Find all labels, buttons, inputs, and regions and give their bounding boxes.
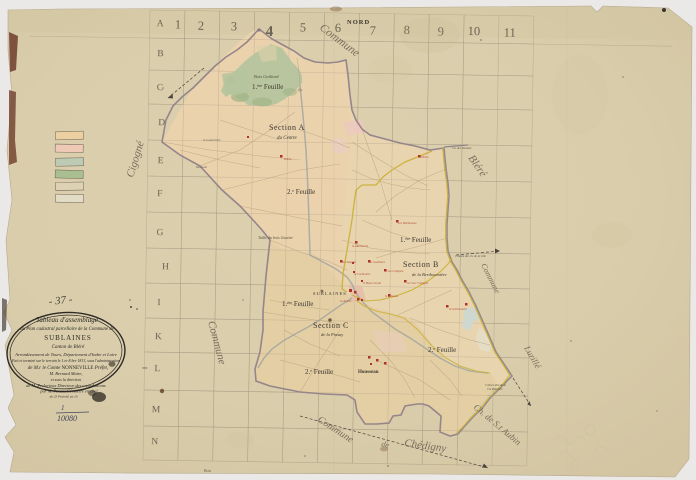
svg-text:I: I	[157, 298, 160, 308]
svg-text:7: 7	[370, 23, 376, 37]
svg-text:la Cochinière: la Cochinière	[354, 272, 371, 276]
svg-text:Clos Colignon: Clos Colignon	[386, 269, 404, 273]
svg-text:1: 1	[175, 17, 181, 31]
svg-text:11: 11	[504, 26, 516, 40]
svg-text:2.e Feuille: 2.e Feuille	[428, 346, 456, 354]
svg-text:1.ère Feuille: 1.ère Feuille	[400, 236, 431, 244]
svg-text:2: 2	[198, 19, 204, 33]
svg-text:Roime: Roime	[283, 157, 292, 161]
svg-text:3: 3	[231, 19, 237, 33]
svg-text:la Grillonnière: la Grillonnière	[449, 307, 468, 311]
svg-text:Ch. des Novales: Ch. des Novales	[452, 146, 472, 150]
svg-text:10080: 10080	[57, 414, 77, 423]
svg-text:10: 10	[468, 24, 481, 38]
svg-text:Marsault: Marsault	[195, 165, 207, 169]
svg-text:G: G	[156, 228, 163, 238]
svg-text:Cle Platrière: Cle Platrière	[487, 387, 503, 391]
svg-text:Croisée des ch. de la ville: Croisée des ch. de la ville	[455, 254, 487, 258]
svg-text:le Haut Cousin: le Haut Cousin	[363, 281, 382, 285]
svg-text:NORD: NORD	[347, 19, 370, 26]
svg-text:Tableau d'assemblage: Tableau d'assemblage	[36, 316, 98, 324]
svg-text:Taille du bois Gautier: Taille du bois Gautier	[258, 235, 294, 240]
svg-text:et sous la direction: et sous la direction	[51, 377, 81, 382]
svg-text:la Touche: la Touche	[340, 299, 352, 303]
svg-text:de M. Prolorieux Directeur des: de M. Prolorieux Directeur des contribut…	[26, 383, 106, 388]
svg-text:Canton de Bléré: Canton de Bléré	[52, 345, 86, 350]
svg-text:Section B: Section B	[403, 260, 439, 269]
svg-text:Section C: Section C	[313, 321, 349, 330]
svg-text:Bois Gaillard: Bois Gaillard	[254, 74, 279, 79]
svg-text:Bois: Bois	[204, 468, 212, 473]
svg-text:les Gauthiers: les Gauthiers	[369, 260, 386, 264]
svg-text:5: 5	[300, 20, 306, 34]
svg-text:E: E	[158, 156, 164, 166]
svg-text:N: N	[151, 437, 158, 447]
svg-text:M: M	[152, 405, 161, 415]
svg-text:A: A	[157, 19, 164, 29]
svg-text:du 25 Prairial an 13.: du 25 Prairial an 13.	[50, 395, 79, 399]
svg-text:1.ère Feuille: 1.ère Feuille	[252, 83, 283, 91]
svg-text:Les Boblineaux: Les Boblineaux	[397, 221, 417, 225]
svg-text:H: H	[162, 262, 169, 272]
svg-text:la Cour Colignon: la Cour Colignon	[407, 281, 429, 285]
svg-text:du Plan cadastral parcellaire: du Plan cadastral parcellaire de la Comm…	[20, 327, 114, 332]
svg-text:1: 1	[61, 404, 65, 412]
svg-text:2.e Feuille: 2.e Feuille	[287, 188, 315, 196]
svg-text:L: L	[154, 364, 160, 374]
svg-text:la Chapelle: la Chapelle	[342, 260, 357, 264]
svg-text:- 37 -: - 37 -	[48, 294, 73, 308]
svg-text:Villiers: Villiers	[420, 155, 429, 159]
svg-text:B: B	[157, 49, 164, 59]
svg-text:1.ère Feuille: 1.ère Feuille	[282, 300, 313, 308]
svg-text:SUBLAINES: SUBLAINES	[44, 334, 92, 342]
svg-text:Housseau: Housseau	[358, 370, 379, 375]
svg-text:du Centre: du Centre	[277, 136, 297, 141]
svg-text:K: K	[155, 332, 162, 342]
svg-text:de la Pinsay: de la Pinsay	[321, 332, 343, 337]
svg-text:Section A: Section A	[269, 123, 305, 132]
svg-text:le Sabaune: le Sabaune	[385, 294, 399, 298]
svg-text:la Martinerie: la Martinerie	[352, 244, 369, 248]
svg-text:SUBLAINES: SUBLAINES	[313, 291, 347, 296]
svg-text:la Gaubertière: la Gaubertière	[203, 138, 221, 142]
svg-text:de la Berthoumière: de la Berthoumière	[412, 272, 447, 277]
svg-text:2.e Feuille: 2.e Feuille	[305, 368, 333, 376]
svg-text:F: F	[157, 189, 162, 199]
